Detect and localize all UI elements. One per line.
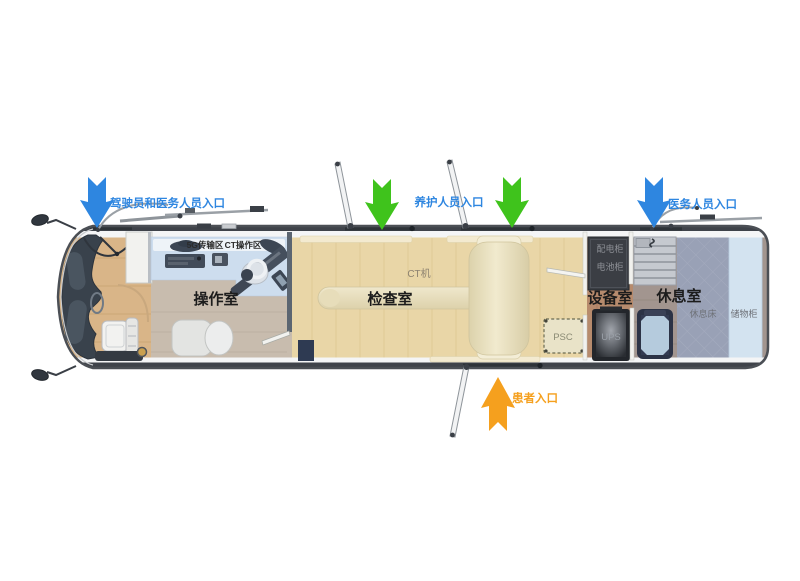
lounge-chair-back bbox=[205, 321, 233, 355]
psc-label: PSC bbox=[553, 332, 573, 343]
exam-corner-cabinet bbox=[298, 340, 314, 361]
ups-label: UPS bbox=[601, 332, 621, 343]
rest-room-label: 休息室 bbox=[655, 287, 701, 305]
left-top-mirror bbox=[30, 213, 76, 229]
maintenance-entrance-arrow-2 bbox=[495, 177, 529, 228]
maintenance-entrance-arrow-1 bbox=[365, 179, 399, 230]
operation-room-label: 操作室 bbox=[193, 290, 238, 308]
roof-vent bbox=[197, 224, 211, 229]
rest-bed-label: 休息床 bbox=[689, 308, 716, 319]
power-cabinet-label: 配电柜 bbox=[596, 243, 623, 254]
floorplan-svg: 驾驶员和医务人员入口 养护人员入口 医务人员入口 患者入口 操作室 检查室 设备… bbox=[0, 0, 800, 581]
operator-head bbox=[241, 269, 253, 281]
maintenance-entrance-label: 养护人员入口 bbox=[414, 195, 484, 209]
ct-scanner-label: CT机 bbox=[407, 267, 430, 280]
examination-room-label: 检查室 bbox=[367, 290, 412, 308]
roof-hatch bbox=[222, 224, 236, 229]
left-bottom-mirror bbox=[30, 366, 76, 382]
ct-table-endcap bbox=[320, 289, 340, 307]
ups-top-tab bbox=[600, 307, 622, 311]
medical-entrance-arrow bbox=[637, 177, 671, 228]
transmission-server bbox=[165, 254, 205, 268]
crew-bed-headboard bbox=[644, 310, 666, 316]
cab-console bbox=[95, 351, 143, 361]
patient-entrance-label: 患者入口 bbox=[512, 391, 558, 405]
driver-entrance-arrow bbox=[80, 177, 114, 228]
equipment-rest-wall-upper bbox=[629, 232, 633, 284]
exam-equipment-wall-upper bbox=[583, 232, 587, 295]
ct-gantry bbox=[469, 242, 529, 355]
ct-console-zone-label: CT操作区 bbox=[225, 240, 262, 250]
crew-bed-mattress bbox=[641, 315, 669, 355]
patient-entrance-arrow bbox=[481, 377, 515, 431]
hinge-dot bbox=[115, 252, 119, 256]
server-slot bbox=[168, 257, 194, 260]
maintenance-door-threshold-1 bbox=[300, 236, 412, 243]
cab-cup-holder bbox=[138, 348, 147, 357]
storage-cabinet-label: 储物柜 bbox=[730, 308, 757, 319]
exam-equipment-wall-lower bbox=[583, 315, 587, 360]
medical-entrance-label: 医务人员入口 bbox=[668, 197, 737, 211]
battery-cabinet-label: 电池柜 bbox=[596, 261, 623, 272]
cab-partition-wall bbox=[148, 232, 151, 283]
five-g-zone-label: 5G传输区 bbox=[187, 240, 224, 250]
server-slot bbox=[168, 262, 188, 265]
server-knob bbox=[197, 257, 201, 261]
operation-exam-wall bbox=[287, 232, 292, 332]
step-landing bbox=[636, 239, 650, 248]
floorplan-canvas: 驾驶员和医务人员入口 养护人员入口 医务人员入口 患者入口 操作室 检查室 设备… bbox=[0, 0, 800, 581]
equipment-rest-wall-lower bbox=[630, 308, 634, 360]
open-door-flap-2 bbox=[447, 160, 535, 231]
driver-entrance-label: 驾驶员和医务人员入口 bbox=[109, 196, 225, 210]
equipment-room-label: 设备室 bbox=[587, 289, 632, 307]
storage-cabinet-strip bbox=[729, 231, 762, 365]
small-device-screen bbox=[215, 256, 222, 263]
